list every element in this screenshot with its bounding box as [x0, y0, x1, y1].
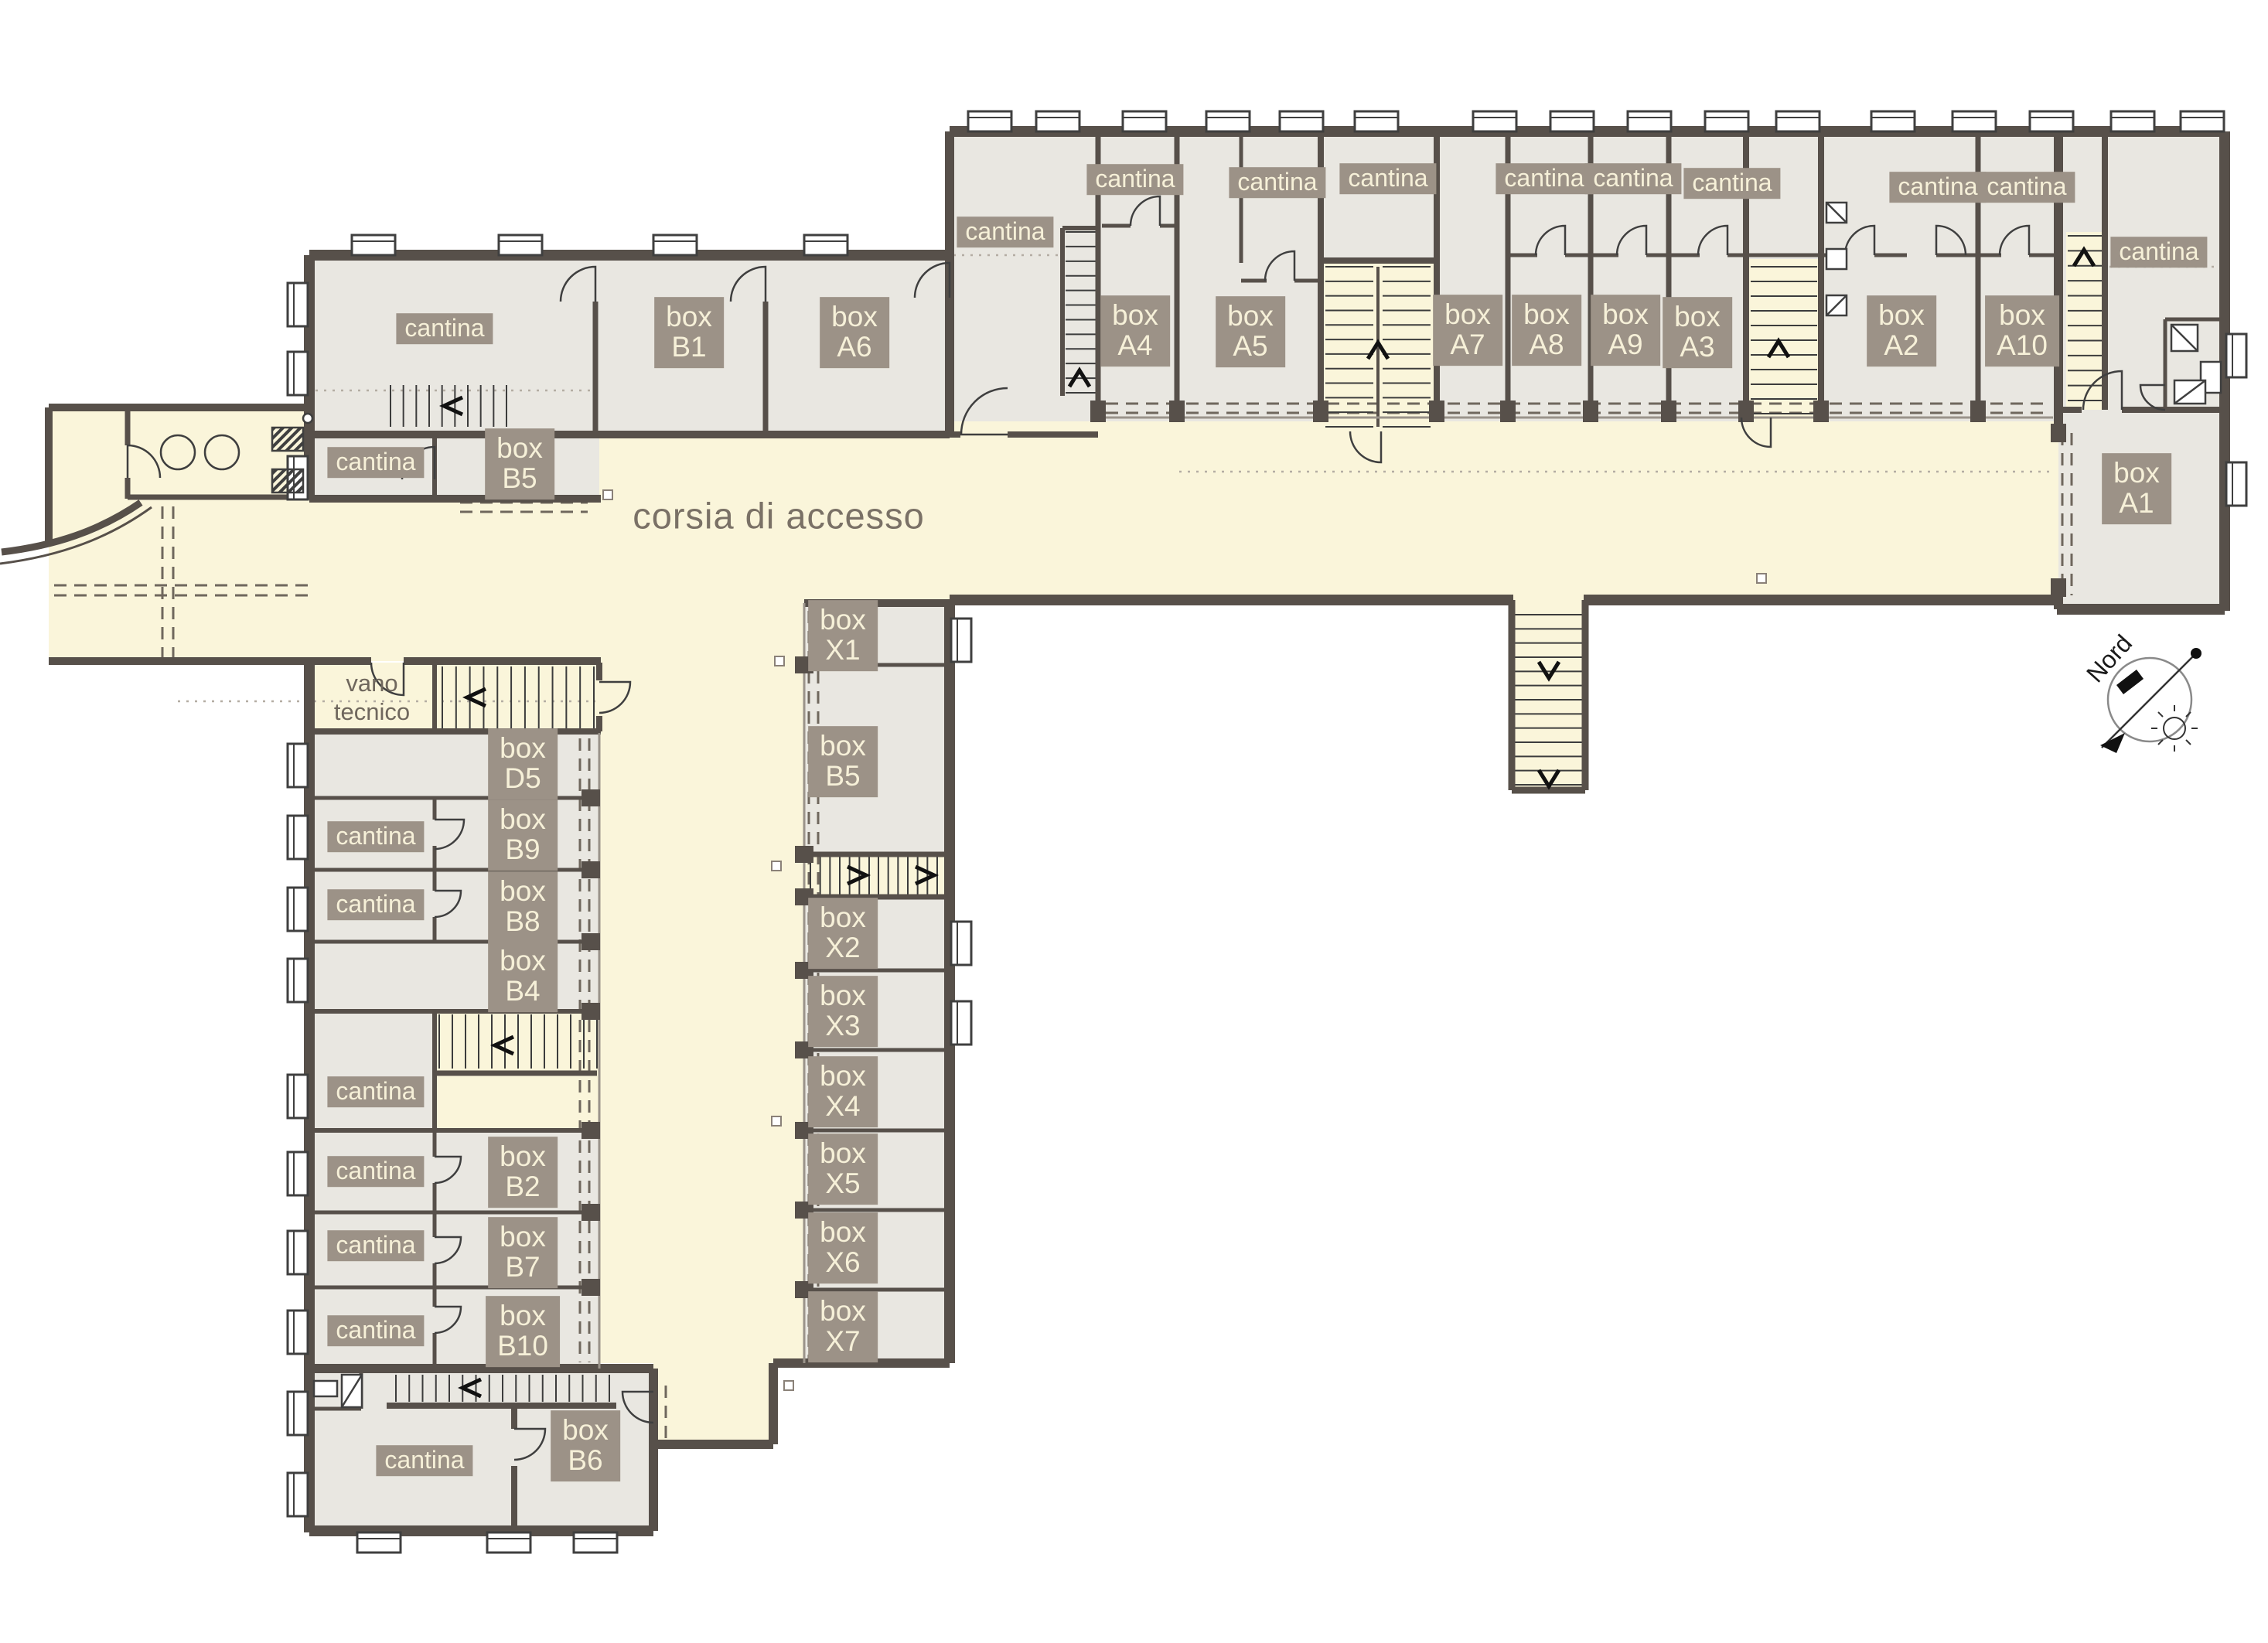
box-word: box — [820, 1297, 866, 1327]
room-label-cantina-10: cantina — [1978, 172, 2075, 203]
box-code: A10 — [1997, 331, 2048, 361]
room-label-box-D5: boxD5 — [488, 728, 558, 799]
box-word: box — [820, 1062, 866, 1092]
room-label-cantina-1: cantina — [327, 447, 424, 478]
room-label-cantina-2: cantina — [957, 216, 1053, 247]
room-label-box-A8: boxA8 — [1512, 295, 1581, 366]
box-word: box — [1227, 302, 1274, 332]
room-label-box-X6: boxX6 — [808, 1212, 878, 1283]
room-label-box-X2: boxX2 — [808, 898, 878, 969]
box-word: box — [820, 1139, 866, 1169]
box-code: B2 — [500, 1172, 546, 1202]
box-word: box — [831, 302, 878, 332]
room-label-box-B7: boxB7 — [488, 1217, 558, 1288]
box-code: X6 — [820, 1248, 866, 1278]
box-code: B10 — [497, 1331, 548, 1362]
box-code: X5 — [820, 1169, 866, 1199]
box-code: X4 — [820, 1092, 866, 1122]
room-label-box-X1: boxX1 — [808, 600, 878, 671]
room-label-cantina-16: cantina — [327, 1230, 424, 1261]
box-code: A1 — [2113, 489, 2160, 519]
box-word: box — [820, 1218, 866, 1248]
box-code: A5 — [1227, 332, 1274, 362]
box-code: B1 — [666, 332, 712, 363]
box-word: box — [820, 605, 866, 636]
room-label-box-B6: boxB6 — [551, 1410, 620, 1481]
box-word: box — [1602, 300, 1649, 330]
box-word: box — [820, 731, 866, 762]
box-code: A3 — [1674, 332, 1721, 363]
box-word: box — [1523, 300, 1570, 330]
box-code: X1 — [820, 636, 866, 666]
room-label-cantina-14: cantina — [327, 1076, 424, 1107]
room-label-cantina-7: cantina — [1584, 163, 1681, 194]
room-label-box-B4: boxB4 — [488, 941, 558, 1012]
labels-layer: boxB1boxA6boxB5boxA4boxA5boxA7boxA8boxA9… — [0, 0, 2268, 1643]
box-word: box — [500, 946, 546, 977]
box-word: box — [1997, 301, 2048, 331]
room-label-cantina-9: cantina — [1889, 172, 1986, 203]
box-code: B7 — [500, 1253, 546, 1283]
box-code: B8 — [500, 907, 546, 937]
box-word: box — [562, 1416, 609, 1446]
floor-plan: boxB1boxA6boxB5boxA4boxA5boxA7boxA8boxA9… — [0, 0, 2268, 1643]
box-code: A4 — [1112, 331, 1158, 361]
box-word: box — [500, 734, 546, 764]
room-label-box-X4: boxX4 — [808, 1056, 878, 1127]
room-label-cantina-6: cantina — [1496, 163, 1592, 194]
room-label-cantina-0: cantina — [396, 313, 493, 344]
room-label-box-X5: boxX5 — [808, 1133, 878, 1205]
box-word: box — [1444, 300, 1491, 330]
room-label-cantina-13: cantina — [327, 889, 424, 920]
room-label-box-A4: boxA4 — [1100, 295, 1170, 366]
room-label-cantina-4: cantina — [1229, 167, 1325, 198]
technical-room-label: vano tecnico — [310, 669, 434, 726]
box-code: B5 — [496, 464, 543, 494]
box-word: box — [496, 434, 543, 464]
box-code: B9 — [500, 835, 546, 865]
box-code: A8 — [1523, 330, 1570, 360]
room-label-box-A5: boxA5 — [1216, 296, 1285, 367]
box-word: box — [666, 302, 712, 332]
corridor-label: corsia di accesso — [633, 495, 925, 537]
room-label-box-A2: boxA2 — [1867, 295, 1936, 366]
box-code: A2 — [1878, 331, 1925, 361]
room-label-box-X3: boxX3 — [808, 976, 878, 1047]
box-word: box — [500, 877, 546, 907]
box-code: X7 — [820, 1327, 866, 1357]
box-word: box — [500, 1222, 546, 1253]
box-word: box — [820, 981, 866, 1011]
room-label-box-B8: boxB8 — [488, 871, 558, 943]
room-label-cantina-18: cantina — [376, 1445, 472, 1476]
room-label-box-B9: boxB9 — [488, 799, 558, 871]
box-code: X2 — [820, 933, 866, 963]
room-label-cantina-8: cantina — [1683, 168, 1780, 199]
room-label-box-B5: boxB5 — [485, 428, 554, 499]
room-label-box-B2: boxB2 — [488, 1137, 558, 1208]
box-word: box — [500, 805, 546, 835]
box-code: X3 — [820, 1011, 866, 1041]
box-code: B5 — [820, 762, 866, 792]
room-label-box-A1: boxA1 — [2102, 453, 2171, 524]
room-label-box-A3: boxA3 — [1663, 297, 1732, 368]
room-label-box-X7: boxX7 — [808, 1291, 878, 1362]
room-label-box-A7: boxA7 — [1433, 295, 1502, 366]
room-label-box-B5-mid: boxB5 — [808, 726, 878, 797]
room-label-cantina-15: cantina — [327, 1156, 424, 1187]
box-code: A7 — [1444, 330, 1491, 360]
box-code: A9 — [1602, 330, 1649, 360]
room-label-cantina-12: cantina — [327, 821, 424, 852]
box-code: B6 — [562, 1446, 609, 1476]
box-word: box — [497, 1301, 548, 1331]
box-word: box — [1112, 301, 1158, 331]
room-label-box-B1: boxB1 — [654, 297, 724, 368]
box-code: B4 — [500, 977, 546, 1007]
box-word: box — [1674, 302, 1721, 332]
box-word: box — [500, 1142, 546, 1172]
box-code: A6 — [831, 332, 878, 363]
room-label-cantina-5: cantina — [1339, 163, 1436, 194]
room-label-box-A6: boxA6 — [820, 297, 889, 368]
box-word: box — [1878, 301, 1925, 331]
room-label-box-A10: boxA10 — [1985, 295, 2059, 366]
room-label-cantina-11: cantina — [2110, 237, 2207, 268]
room-label-cantina-17: cantina — [327, 1315, 424, 1346]
box-word: box — [2113, 458, 2160, 489]
room-label-box-B10: boxB10 — [486, 1296, 560, 1367]
room-label-box-A9: boxA9 — [1591, 295, 1660, 366]
room-label-cantina-3: cantina — [1086, 164, 1183, 195]
box-code: D5 — [500, 764, 546, 794]
box-word: box — [820, 903, 866, 933]
